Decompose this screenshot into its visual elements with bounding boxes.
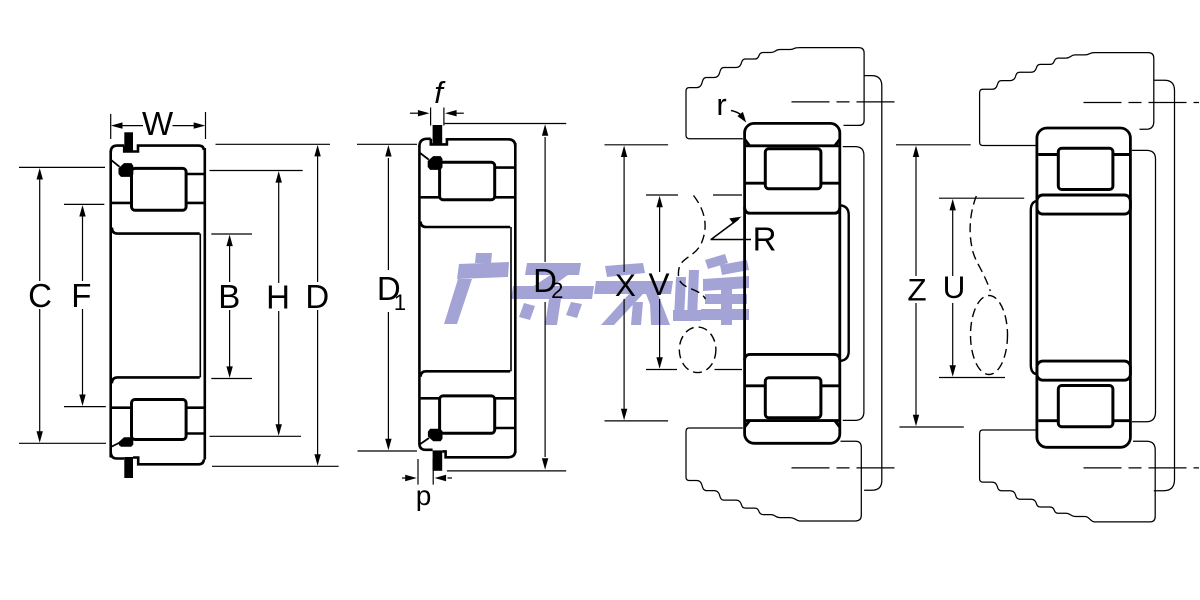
svg-text:H: H — [266, 279, 290, 316]
svg-text:2: 2 — [551, 278, 563, 303]
svg-text:C: C — [28, 277, 52, 314]
svg-text:U: U — [943, 269, 966, 305]
svg-text:W: W — [142, 105, 174, 142]
svg-text:R: R — [753, 221, 777, 258]
svg-text:X: X — [615, 267, 636, 303]
svg-text:p: p — [416, 480, 432, 511]
svg-text:V: V — [648, 266, 669, 302]
svg-text:D: D — [305, 278, 329, 315]
svg-text:Z: Z — [907, 272, 926, 308]
svg-text:F: F — [71, 277, 91, 314]
svg-text:B: B — [218, 278, 240, 315]
svg-text:f: f — [434, 75, 446, 110]
svg-text:1: 1 — [394, 290, 406, 315]
svg-text:r: r — [716, 87, 726, 122]
